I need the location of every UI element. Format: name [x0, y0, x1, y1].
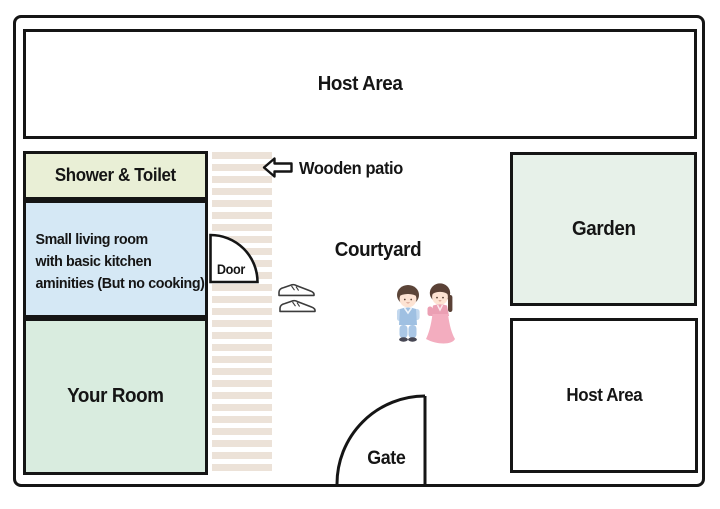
room-label-garden: Garden: [572, 218, 636, 241]
room-label-shower-toilet: Shower & Toilet: [55, 165, 176, 186]
room-living: Small living room with basic kitchen ami…: [23, 200, 208, 318]
hanbok-boy: [397, 285, 420, 342]
courtyard-label: Courtyard: [334, 239, 420, 262]
room-label-host-area-bottom: Host Area: [566, 385, 642, 406]
wooden-patio-label-wrap: Wooden patio: [299, 157, 410, 179]
room-garden: Garden: [510, 152, 697, 306]
shoes-icon: [276, 282, 318, 315]
courtyard-label-wrap: Courtyard: [305, 236, 450, 264]
room-label-living: Small living room with basic kitchen ami…: [26, 203, 205, 295]
room-your-room: Your Room: [23, 318, 208, 475]
living-line-1: Small living room: [36, 229, 205, 251]
left-arrow-icon: [262, 156, 294, 179]
gate-swing-arc: [334, 393, 428, 487]
door-label: Door: [217, 262, 245, 277]
living-line-3: aminities (But no cooking): [36, 273, 205, 295]
wooden-patio-strip: [212, 152, 272, 474]
gate-label: Gate: [367, 448, 405, 470]
room-host-area-bottom: Host Area: [510, 318, 698, 473]
room-label-your-room: Your Room: [67, 385, 164, 408]
gate-label-wrap: Gate: [356, 446, 416, 472]
room-host-area-top: Host Area: [23, 29, 697, 139]
wooden-patio-label: Wooden patio: [299, 158, 403, 179]
hanbok-couple-icon: [389, 279, 465, 359]
door-label-wrap: Door: [208, 258, 254, 280]
room-shower-toilet: Shower & Toilet: [23, 151, 208, 200]
room-label-host-area-top: Host Area: [318, 73, 403, 96]
hanbok-girl: [426, 283, 455, 343]
living-line-2: with basic kitchen: [36, 251, 205, 273]
floorplan-canvas: Host Area Shower & Toilet Small living r…: [0, 0, 720, 509]
